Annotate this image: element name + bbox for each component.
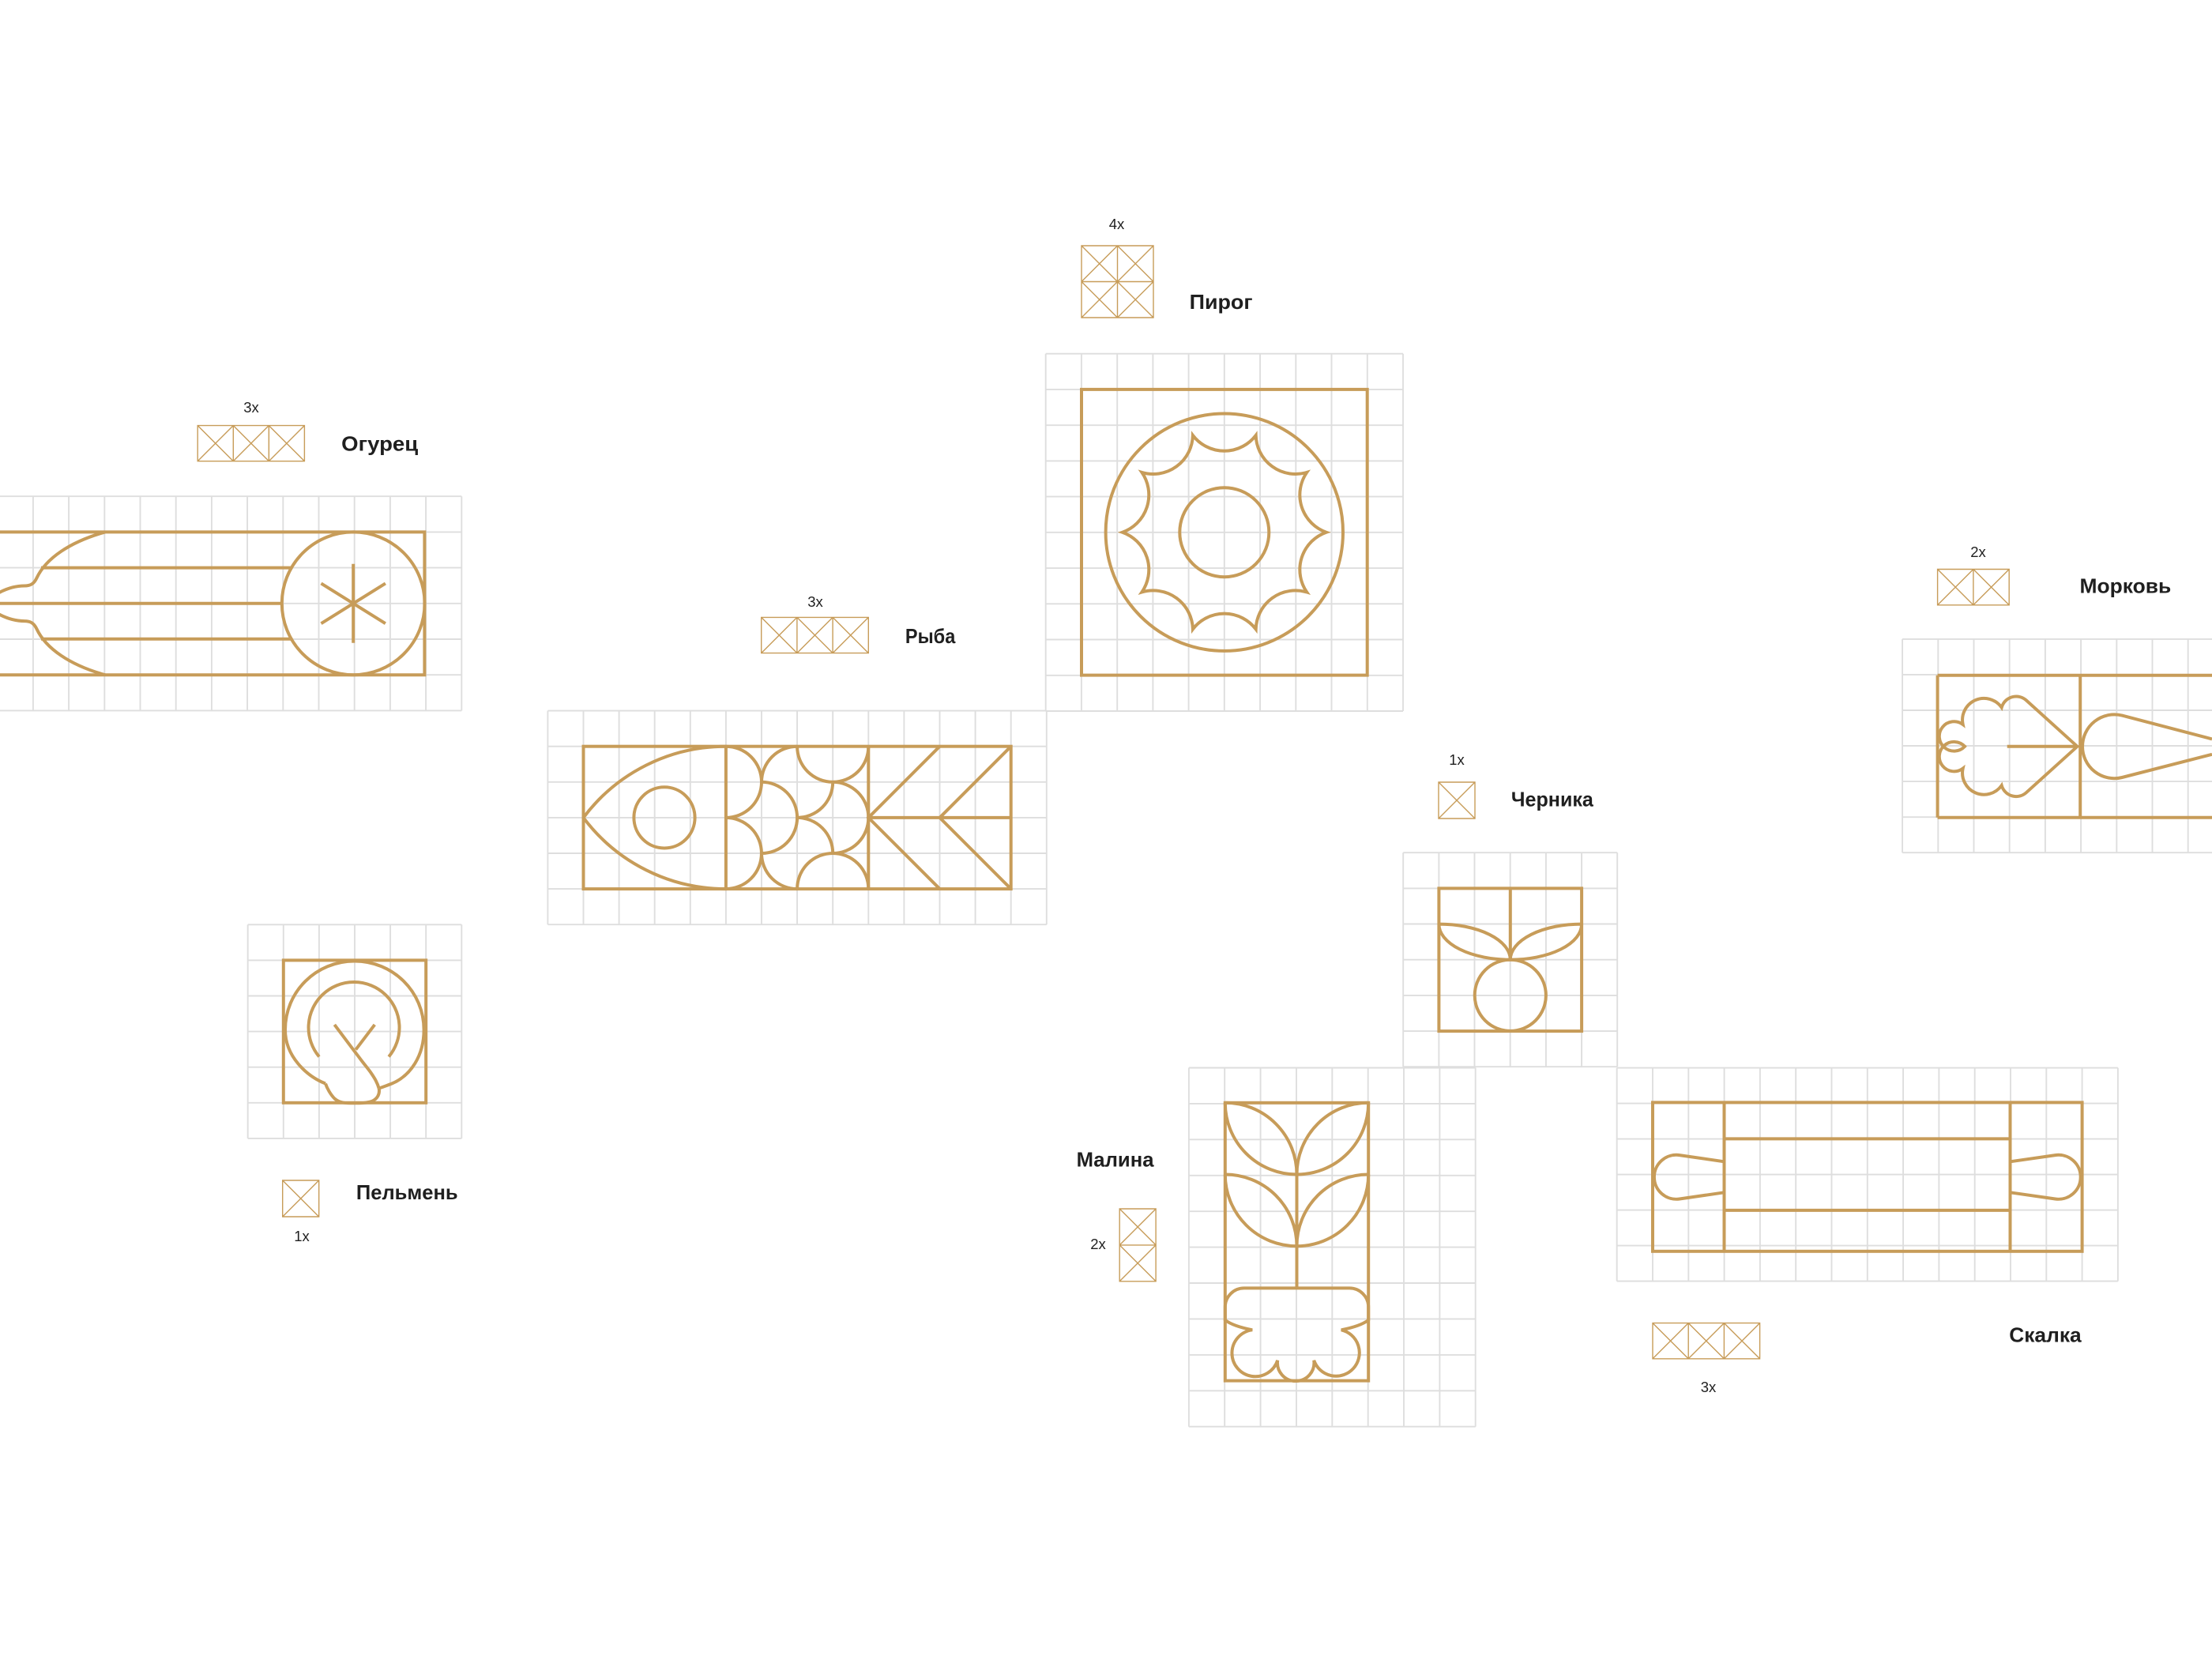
svg-text:Пирог: Пирог	[1190, 290, 1253, 314]
svg-text:1x: 1x	[294, 1228, 310, 1244]
svg-text:3x: 3x	[807, 593, 823, 610]
svg-text:2x: 2x	[1970, 544, 1986, 560]
svg-text:Черника: Черника	[1511, 787, 1594, 811]
svg-text:2x: 2x	[1090, 1236, 1106, 1252]
svg-text:Рыба: Рыба	[905, 624, 956, 648]
svg-text:Морковь: Морковь	[2080, 574, 2172, 597]
svg-text:Малина: Малина	[1077, 1148, 1154, 1172]
svg-text:Пельмень: Пельмень	[356, 1180, 458, 1204]
svg-text:4x: 4x	[1109, 216, 1125, 232]
svg-text:3x: 3x	[243, 399, 259, 416]
svg-text:Огурец: Огурец	[341, 431, 418, 455]
svg-text:3x: 3x	[1701, 1379, 1717, 1395]
svg-text:1x: 1x	[1449, 751, 1465, 768]
svg-text:Скалка: Скалка	[2009, 1323, 2082, 1346]
